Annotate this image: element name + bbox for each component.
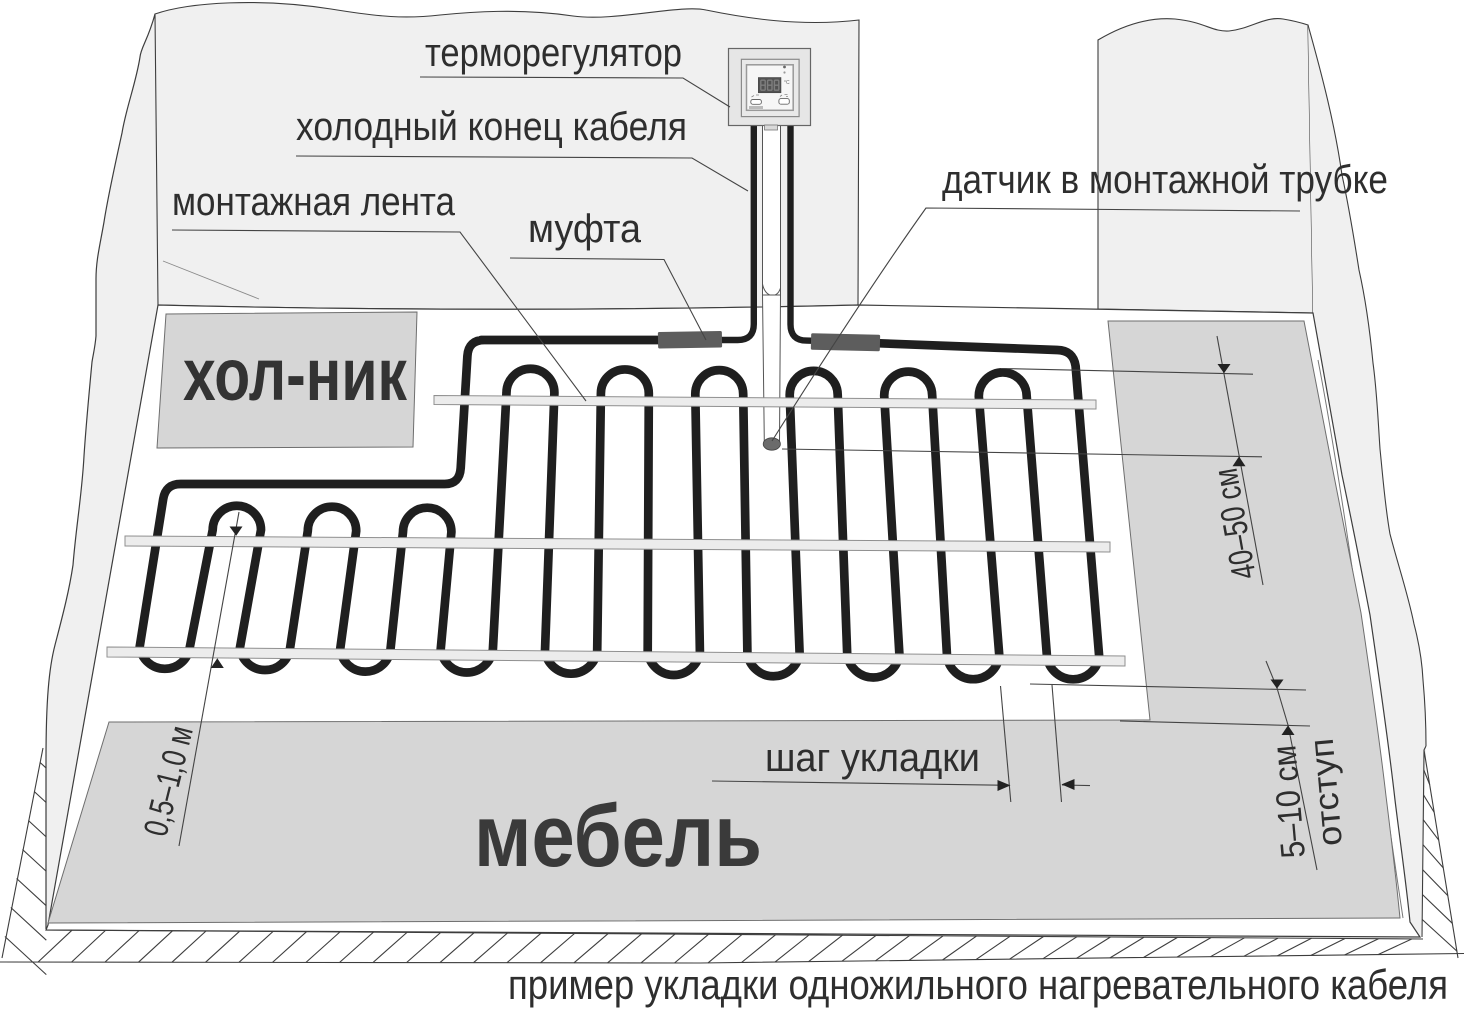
svg-text:монтажная лента: монтажная лента — [172, 180, 456, 224]
svg-text:°C: °C — [784, 80, 790, 86]
svg-text:мебель: мебель — [474, 786, 762, 885]
svg-text:пример укладки одножильного на: пример укладки одножильного нагревательн… — [508, 961, 1448, 1008]
svg-text:холодный конец кабеля: холодный конец кабеля — [296, 105, 687, 149]
svg-text:хол-ник: хол-ник — [183, 333, 408, 416]
svg-text:муфта: муфта — [528, 207, 642, 251]
svg-text:шаг укладки: шаг укладки — [765, 736, 980, 780]
svg-text:датчик в монтажной трубке: датчик в монтажной трубке — [942, 158, 1388, 202]
svg-text:терморегулятор: терморегулятор — [425, 31, 682, 75]
